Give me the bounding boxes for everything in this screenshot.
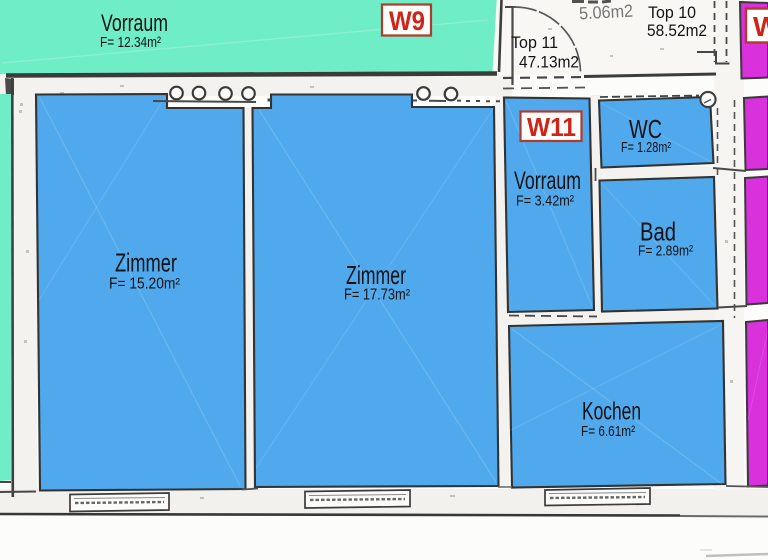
svg-text:F= 3.42m²: F= 3.42m² [516,193,574,210]
svg-text:F= 2.89m²: F= 2.89m² [638,243,693,260]
svg-text:Top 10: Top 10 [648,3,696,22]
svg-text:F= 17.73m²: F= 17.73m² [344,287,410,304]
svg-text:Kochen: Kochen [582,398,641,426]
svg-text:Zimmer: Zimmer [346,260,406,290]
svg-text:Vorraum: Vorraum [101,10,168,37]
svg-text:F= 1.28m²: F= 1.28m² [621,140,671,156]
svg-text:W9: W9 [389,6,425,36]
svg-text:Vorraum: Vorraum [514,167,581,195]
svg-text:F= 12.34m²: F= 12.34m² [100,34,161,51]
svg-text:47.13m2: 47.13m2 [519,53,579,72]
svg-text:W: W [753,11,768,42]
svg-text:Top 11: Top 11 [511,33,558,52]
svg-text:5.06m2: 5.06m2 [579,1,634,24]
svg-text:F= 6.61m²: F= 6.61m² [581,423,635,440]
svg-text:W11: W11 [527,112,576,142]
svg-text:58.52m2: 58.52m2 [647,21,707,40]
svg-text:F= 15.20m²: F= 15.20m² [109,276,180,293]
svg-text:Zimmer: Zimmer [115,248,177,278]
